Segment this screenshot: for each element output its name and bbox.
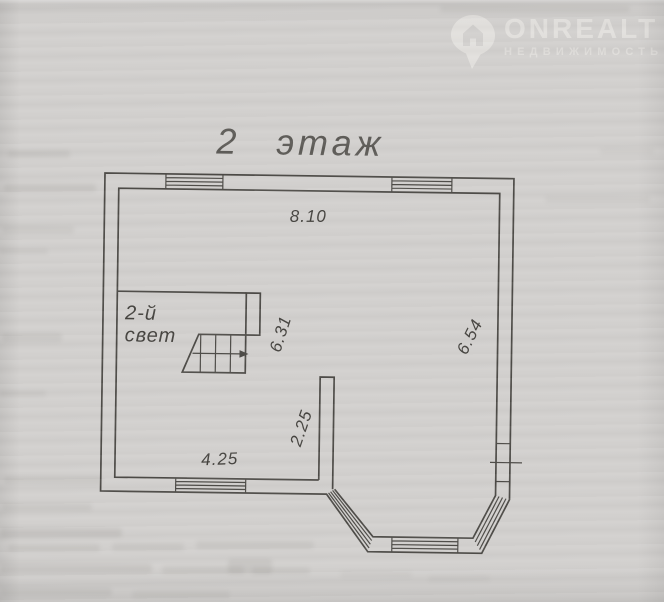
void-label-line1: 2-й <box>124 302 157 324</box>
dim-bottom-wall: 4.25 <box>201 449 239 469</box>
bay-window-left-diagonal <box>328 490 373 548</box>
partition-wall <box>319 377 335 489</box>
staircase <box>182 334 249 373</box>
stair-direction-arrow <box>239 350 248 358</box>
outer-wall-outline <box>100 173 514 554</box>
exterior-walls <box>100 173 514 554</box>
dim-left-void: 6.31 <box>266 313 295 354</box>
newel-pillar <box>246 293 261 335</box>
window-top-right <box>392 177 452 193</box>
inner-wall-outline <box>114 188 500 538</box>
stair-direction-line <box>192 353 239 354</box>
void-label-line2: свет <box>125 324 177 347</box>
floor-plan-drawing: 2 этаж <box>0 0 664 602</box>
dim-right-wall: 6.54 <box>453 316 487 358</box>
window-bottom-left <box>176 478 246 493</box>
dimension-labels: 8.10 6.31 6.54 2.25 4.25 <box>201 205 489 473</box>
dim-top-wall: 8.10 <box>290 207 327 226</box>
void-room-label: 2-й свет <box>124 302 177 347</box>
bay-window-bottom <box>392 537 458 553</box>
scanned-floor-plan-page: ONREALT НЕДВИЖИМОСТЬ 2 этаж <box>0 0 664 602</box>
window-right-wall <box>490 443 523 481</box>
floor-title: 2 этаж <box>215 121 385 164</box>
dim-partition: 2.25 <box>286 407 316 449</box>
window-top-left <box>166 174 223 190</box>
void-edge-line <box>117 291 246 293</box>
